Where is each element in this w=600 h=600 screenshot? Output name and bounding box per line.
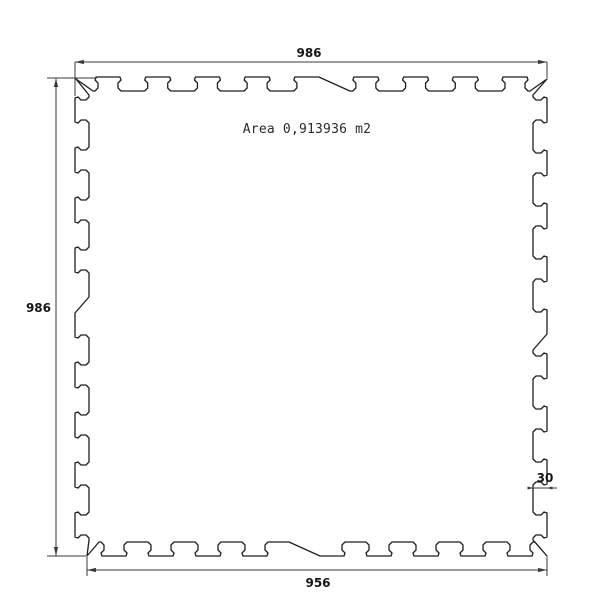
dim-left-label: 986 bbox=[26, 301, 51, 315]
arrow-bottom-right bbox=[538, 568, 547, 572]
arrow-left-bottom bbox=[54, 547, 58, 556]
arrow-bottom-left bbox=[87, 568, 96, 572]
arrow-left-top bbox=[54, 78, 58, 87]
dim-bottom-label: 956 bbox=[305, 576, 330, 590]
dimension-lines bbox=[47, 62, 557, 576]
dim-depth-label: 30 bbox=[537, 471, 554, 485]
dim-top-label: 986 bbox=[296, 46, 321, 60]
cad-drawing-canvas: 986 986 956 30 Area 0,913936 m2 bbox=[0, 0, 600, 600]
arrow-top-left bbox=[75, 60, 84, 64]
area-annotation: Area 0,913936 m2 bbox=[243, 122, 371, 137]
puzzle-tile-technical-drawing: 986 986 956 30 Area 0,913936 m2 bbox=[0, 0, 600, 600]
arrow-top-right bbox=[538, 60, 547, 64]
arrow-depth-left bbox=[528, 487, 534, 490]
tile-outline bbox=[75, 77, 547, 556]
arrow-depth-right bbox=[547, 487, 553, 490]
